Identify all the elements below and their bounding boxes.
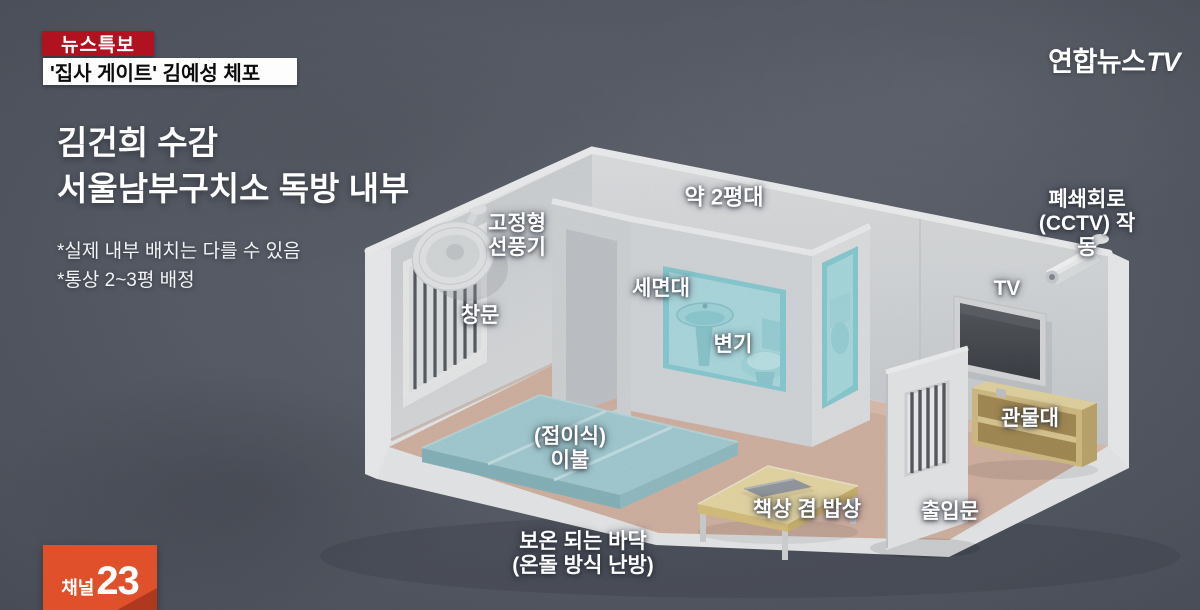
channel-badge-prefix: 채널 xyxy=(61,566,94,610)
network-logo: 연합뉴스TV xyxy=(1048,40,1180,79)
channel-badge-inner: 채널 23 xyxy=(61,559,139,610)
network-logo-text: 연합뉴스 xyxy=(1048,47,1145,77)
headline-bar: '집사 게이트' 김예성 체포 xyxy=(43,58,297,85)
channel-badge: 채널 23 xyxy=(43,545,157,610)
title-line2: 서울남부구치소 독방 내부 xyxy=(57,166,409,212)
disclaimer-notes: *실제 내부 배치는 다를 수 있음 *통상 2~3평 배정 xyxy=(57,238,301,295)
cell-room-diagram xyxy=(0,0,1200,610)
graphic-title: 김건희 수감 서울남부구치소 독방 내부 xyxy=(57,120,409,211)
breaking-news-badge: 뉴스특보 xyxy=(42,31,154,56)
grain-overlay xyxy=(0,0,1200,610)
note-layout: *실제 내부 배치는 다를 수 있음 xyxy=(57,238,301,267)
network-logo-tv: TV xyxy=(1146,47,1180,77)
title-line1: 김건희 수감 xyxy=(57,120,409,166)
broadcast-frame: 뉴스특보 '집사 게이트' 김예성 체포 연합뉴스TV 김건희 수감 서울남부구… xyxy=(0,0,1200,610)
note-size: *통상 2~3평 배정 xyxy=(57,267,301,296)
channel-badge-number: 23 xyxy=(96,559,139,603)
